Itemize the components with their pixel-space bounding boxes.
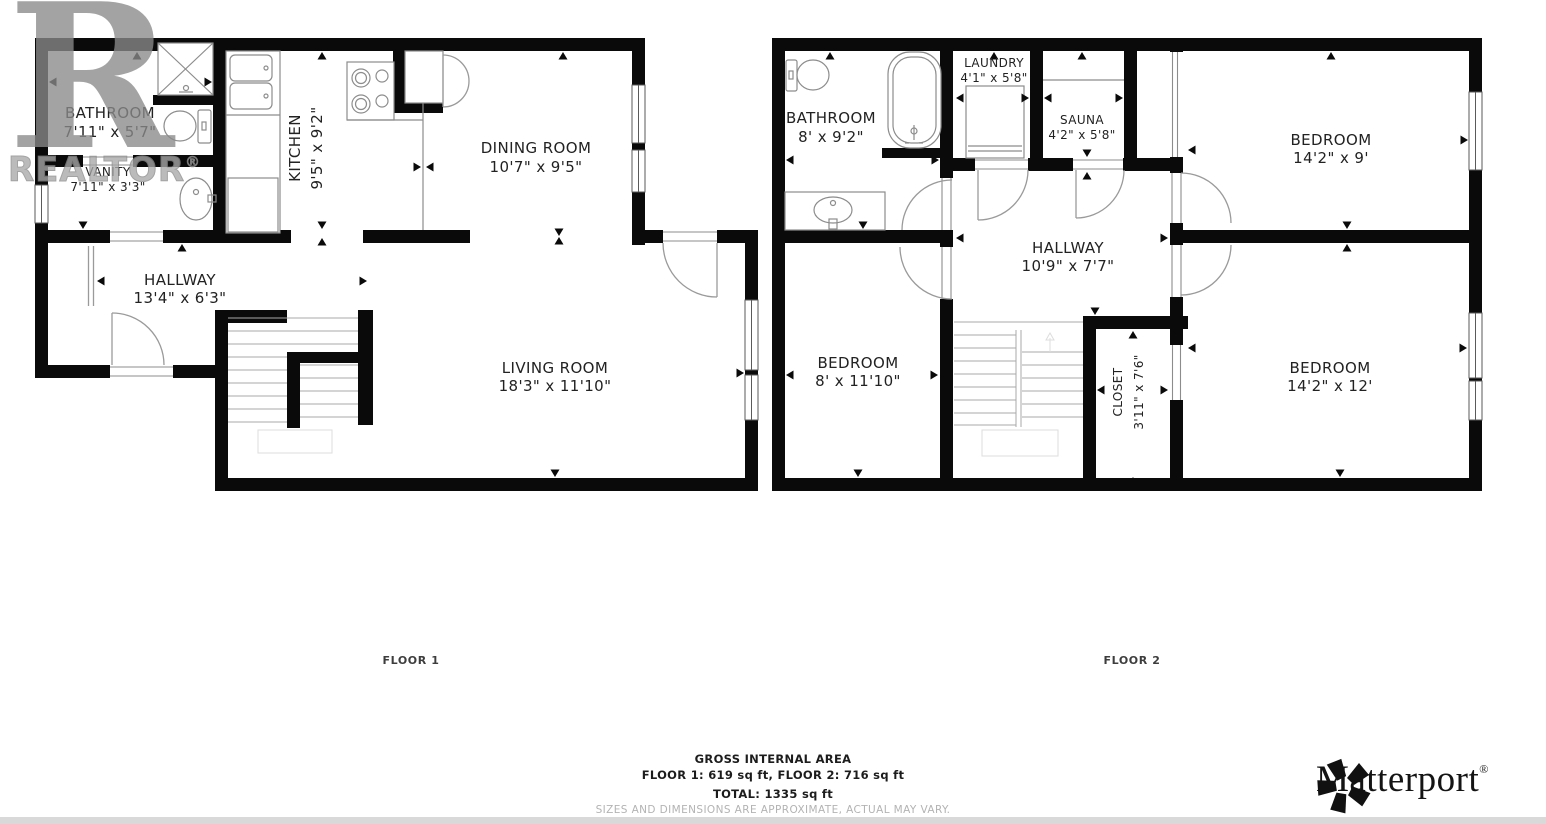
floor2-plan: BATHROOM 8' x 9'2" LAUNDRY 4'1" x 5'8" S… xyxy=(772,38,1482,491)
registered-icon: ® xyxy=(1479,762,1489,776)
room-name: KITCHEN xyxy=(286,114,304,182)
room-dims: 9'5" x 9'2" xyxy=(308,106,326,189)
room-name: HALLWAY xyxy=(1032,239,1104,257)
room-dims: 4'2" x 5'8" xyxy=(1048,128,1115,142)
room-dims: 10'7" x 9'5" xyxy=(490,158,583,176)
floor1-label: FLOOR 1 xyxy=(351,654,471,667)
matterport-logo: Matterport® xyxy=(1316,758,1489,801)
room-name: LAUNDRY xyxy=(964,56,1024,70)
floor2-label: FLOOR 2 xyxy=(1072,654,1192,667)
room-name: HALLWAY xyxy=(144,271,216,289)
room-dims: 8' x 9'2" xyxy=(798,128,864,146)
dining-door-arc xyxy=(663,243,717,297)
bedroom-top-door-arc xyxy=(1181,173,1231,223)
realtor-wordmark: REALTOR® xyxy=(8,150,201,190)
room-name: CLOSET xyxy=(1111,367,1125,416)
entry-door-arc xyxy=(112,313,164,365)
floorplan-drawing: BATHROOM 7'11" x 5'7" VANITY 7'11" x 3'3… xyxy=(0,0,1546,824)
summary-disclaimer: SIZES AND DIMENSIONS ARE APPROXIMATE, AC… xyxy=(0,804,1546,816)
room-name: BEDROOM xyxy=(1290,131,1371,149)
floorplan-canvas: BATHROOM 7'11" x 5'7" VANITY 7'11" x 3'3… xyxy=(0,0,1546,824)
realtor-watermark: R REALTOR® xyxy=(8,0,201,196)
summary-floor-areas: FLOOR 1: 619 sq ft, FLOOR 2: 716 sq ft xyxy=(0,768,1546,782)
room-dims: 8' x 11'10" xyxy=(815,372,901,390)
bottom-edge-bar xyxy=(0,817,1546,824)
room-name: BEDROOM xyxy=(817,354,898,372)
room-dims: 4'1" x 5'8" xyxy=(960,71,1027,85)
realtor-word: REALTOR xyxy=(8,150,185,190)
floor2-walls xyxy=(772,38,1482,491)
room-name: SAUNA xyxy=(1060,113,1104,127)
toilet-icon xyxy=(786,60,829,91)
kitchen-counter xyxy=(226,51,280,233)
room-name: BEDROOM xyxy=(1289,359,1370,377)
area-summary: GROSS INTERNAL AREA FLOOR 1: 619 sq ft, … xyxy=(0,750,1546,816)
room-dims: 10'9" x 7'7" xyxy=(1022,257,1115,275)
room-name: BATHROOM xyxy=(786,109,876,127)
room-dims: 13'4" x 6'3" xyxy=(134,289,227,307)
room-dims: 3'11" x 7'6" xyxy=(1132,354,1146,429)
bedroom-bottom-door-arc xyxy=(1181,245,1231,295)
room-dims: 14'2" x 9' xyxy=(1293,149,1369,167)
laundry-door-arc xyxy=(978,170,1028,220)
realtor-r-icon: R xyxy=(8,0,201,156)
bathroom-sink-icon xyxy=(785,192,885,230)
matterport-pinwheel-icon xyxy=(1316,758,1372,814)
summary-total-area: TOTAL: 1335 sq ft xyxy=(0,787,1546,801)
room-dims: 14'2" x 12' xyxy=(1287,377,1373,395)
washer-icon xyxy=(966,86,1024,158)
refrigerator-icon xyxy=(405,51,469,107)
stairs-icon xyxy=(954,322,1083,456)
room-name: LIVING ROOM xyxy=(502,359,608,377)
summary-title: GROSS INTERNAL AREA xyxy=(0,752,1546,766)
bathtub-icon xyxy=(888,52,941,148)
room-dims: 18'3" x 11'10" xyxy=(499,377,612,395)
registered-icon: ® xyxy=(185,153,201,171)
sauna-door-arc xyxy=(1076,170,1124,218)
room-name: DINING ROOM xyxy=(481,139,592,157)
